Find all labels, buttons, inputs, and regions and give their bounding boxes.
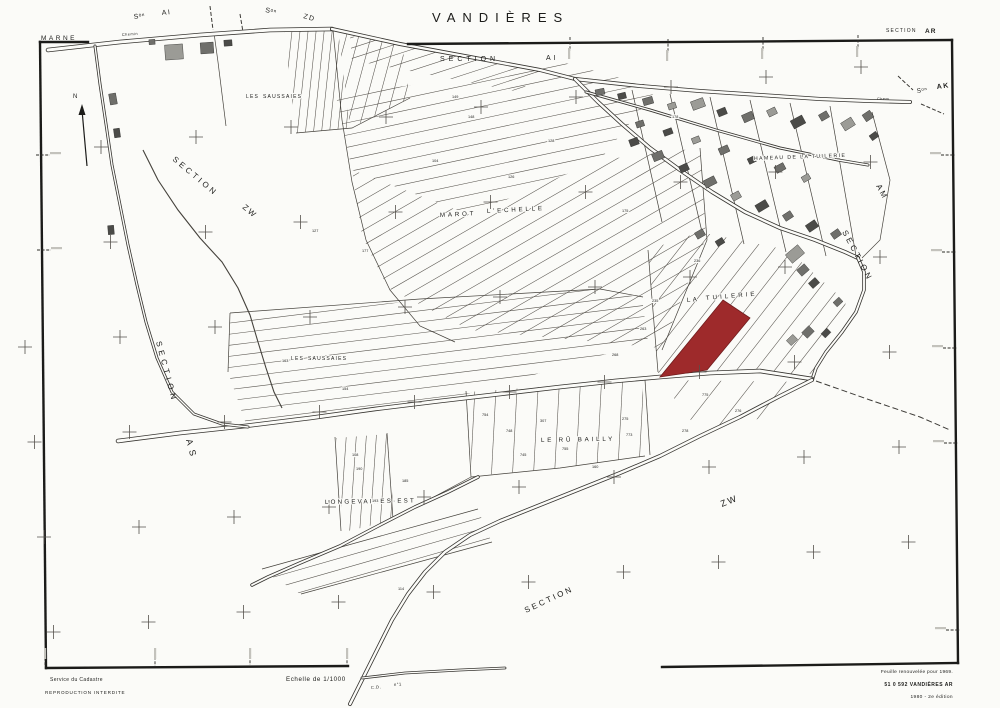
parcel-number: 128 [548, 139, 554, 143]
parcel-number: 178 [672, 115, 678, 119]
parcel-number: 307 [540, 419, 546, 423]
label-les-saussaies-2a: LES [291, 356, 304, 362]
label-le-ru-bailly: LE RÛ BAILLY [541, 436, 615, 444]
parcel-number: 268 [612, 353, 618, 357]
label-reference-feuille: 51 0 592 VANDIÈRES AR [884, 680, 953, 688]
parcel-strips [164, 0, 946, 708]
highlighted-parcel-polygon [660, 300, 750, 377]
parcel-number: 754 [482, 413, 488, 417]
label-section-ai-word: SECTION [440, 56, 499, 63]
label-section-bottom: SECTION [523, 584, 575, 615]
label-la-tuilerie-a: LA [687, 296, 700, 304]
label-zw-upleft: ZW [241, 203, 259, 220]
label-section-ar-word: SECTION [886, 28, 917, 34]
label-edition: 1980 - 2e édition [910, 694, 953, 700]
label-section-ar-code: AR [925, 28, 936, 35]
parcel-number: 755 [562, 447, 568, 451]
parcel-number: 748 [506, 429, 512, 433]
label-les-saussaies-1a: LES [246, 94, 259, 100]
map-labels: VANDIÈRESMARNESECTIONAISECTIONARSᵒⁿAISᵒⁿ… [41, 7, 953, 700]
label-les-saussaies-1b: SAUSSAIES [263, 94, 302, 100]
label-son-ai-prefix: Sᵒⁿ [133, 12, 145, 21]
label-marne: MARNE [41, 35, 77, 42]
label-la-tuilerie-b: TUILERIE [706, 290, 758, 301]
parcel-number: 163 [282, 359, 288, 363]
label-son-ak-code: AK [936, 82, 950, 91]
parcel-number: 149 [452, 95, 458, 99]
label-son-ak-prefix: Sᵒⁿ [916, 87, 928, 95]
label-section-am-word: SECTION [840, 229, 875, 283]
parcel-number: 235 [652, 299, 658, 303]
parcel-number: 108 [352, 453, 358, 457]
parcel-number: 127 [312, 229, 318, 233]
label-section-as-word: SECTION [154, 340, 179, 404]
highlighted-parcel [660, 300, 750, 377]
label-section-as-code: AS [184, 438, 199, 462]
label-son-ai-code: AI [161, 9, 171, 17]
label-les-saussaies-2b: SAUSSAIES [308, 356, 347, 362]
label-son-zd-prefix: Sᵒⁿ [265, 7, 278, 16]
label-service-cadastre: Service du Cadastre [50, 677, 103, 683]
parcel-number: 114 [398, 587, 404, 591]
label-cd-road-a: C.D. [371, 684, 382, 690]
north-arrow [82, 110, 87, 166]
parcel-number: 104 [432, 159, 438, 163]
label-zw-botright: ZW [719, 493, 739, 509]
parcel-number: 276 [735, 409, 741, 413]
parcel-number: 175 [622, 209, 628, 213]
buildings [108, 39, 879, 345]
label-chemin-label: Chemin [122, 32, 138, 37]
label-am-code: AM [874, 183, 889, 201]
roads [48, 29, 910, 704]
label-feuille-renouvelee: Feuille renouvelée pour 1969. [881, 669, 953, 675]
label-chem-label-ne: Chem [877, 97, 889, 101]
parcel-number: 278 [682, 429, 688, 433]
label-echelle: Echelle de 1/1000 [286, 676, 346, 683]
parcel-number: 126 [508, 175, 514, 179]
parcel-number: 185 [402, 479, 408, 483]
parcel-number: 148 [468, 115, 474, 119]
cadastral-map-sheet: VANDIÈRESMARNESECTIONAISECTIONARSᵒⁿAISᵒⁿ… [0, 0, 1000, 708]
parcel-number: 154 [342, 387, 348, 391]
parcel-number: 775 [702, 393, 708, 397]
label-reproduction: REPRODUCTION INTERDITE [45, 690, 125, 695]
parcel-number: 275 [622, 417, 628, 421]
parcel-number: 263 [640, 327, 646, 331]
label-section-ai-code: AI [546, 55, 559, 62]
parcel-number: 190 [356, 467, 362, 471]
parcel-number: 236 [694, 259, 700, 263]
cadastral-map: VANDIÈRESMARNESECTIONAISECTIONARSᵒⁿAISᵒⁿ… [0, 0, 1000, 708]
label-longevaines-est: LONGEVAINES·EST [325, 497, 416, 506]
parcel-number: 177 [362, 249, 368, 253]
parcel-number: 773 [626, 433, 632, 437]
label-north-letter: N [73, 94, 77, 100]
parcel-number: 745 [520, 453, 526, 457]
label-son-zd-code: ZD [302, 13, 316, 23]
parcel-number: 193 [372, 499, 378, 503]
label-cd-road-b: n°1 [394, 681, 402, 687]
label-hameau-tuilerie: HAMEAU DE LA TUILERIE [754, 153, 847, 162]
border-ticks [36, 35, 960, 667]
label-title: VANDIÈRES [432, 10, 569, 25]
sheet-border [40, 40, 958, 668]
label-section-zw-upleft: SECTION [171, 155, 220, 198]
parcel-number: 160 [592, 465, 598, 469]
label-marot-word2: L'ECHELLE [487, 205, 545, 215]
label-marot-word1: MAROT [440, 210, 477, 219]
